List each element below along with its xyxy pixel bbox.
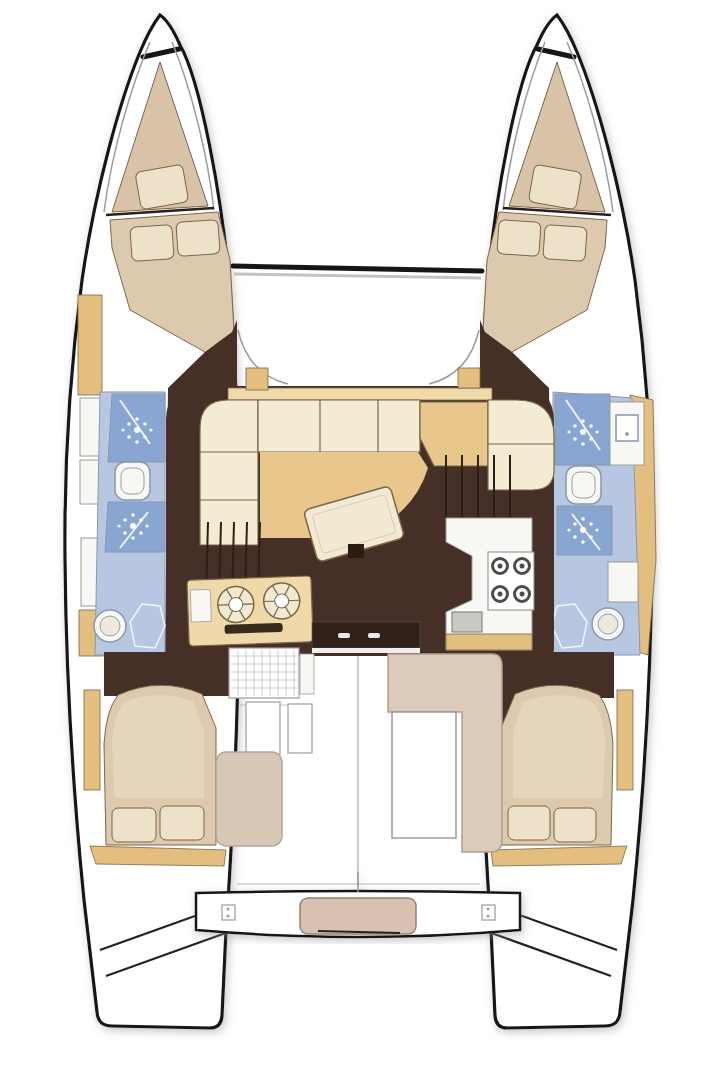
cockpit-seat-port bbox=[216, 752, 282, 846]
galley-sink bbox=[452, 612, 482, 632]
galley-port-unit bbox=[187, 576, 313, 646]
forward-bed-pillow-starboard-1 bbox=[543, 225, 587, 262]
catamaran-floor-plan bbox=[0, 0, 719, 1080]
bathroom-port bbox=[94, 392, 165, 655]
forepeak-pillow-port bbox=[135, 164, 189, 210]
square-sink-icon bbox=[616, 415, 638, 441]
cockpit bbox=[216, 648, 502, 886]
square-sink-drain bbox=[625, 432, 629, 436]
forward-bed-pillow-port-1 bbox=[130, 225, 174, 262]
aft-bed-pillow-starboard-1 bbox=[508, 806, 550, 840]
burner-icon-2 bbox=[263, 582, 300, 619]
aft-deck-trim-starboard bbox=[491, 846, 627, 866]
sofa-right-block bbox=[488, 400, 554, 490]
aft-deck-trim-port bbox=[90, 846, 226, 866]
burner-icon-1 bbox=[217, 586, 254, 623]
aft-bed-pillow-port-1 bbox=[112, 808, 156, 842]
aft-bed-starboard-highlight bbox=[513, 695, 605, 798]
round-sink-bowl-starboard bbox=[598, 614, 618, 634]
vanity-starboard-aft bbox=[608, 562, 638, 602]
cockpit-bench-port-2 bbox=[288, 704, 312, 753]
cockpit-bench-port-1 bbox=[246, 702, 280, 754]
wood-trim-port-fwd bbox=[78, 295, 102, 395]
door-handle-icon bbox=[368, 633, 380, 638]
wood-trim-port-aft bbox=[84, 690, 100, 790]
forward-bed-pillow-port-2 bbox=[176, 220, 220, 257]
cockpit-table bbox=[392, 712, 456, 838]
galley-starboard-trim bbox=[446, 634, 532, 650]
round-sink-bowl-port bbox=[100, 616, 120, 636]
forepeak-pillow-starboard bbox=[528, 164, 582, 210]
aft-bed-pillow-port-2 bbox=[160, 806, 204, 840]
cockpit-grate-table bbox=[229, 648, 299, 698]
cleat-icon-port bbox=[222, 905, 235, 920]
forward-bed-pillow-starboard-2 bbox=[497, 220, 541, 257]
door-handle-icon bbox=[338, 633, 350, 638]
sofa-front-bench bbox=[258, 400, 420, 452]
aft-bench-cushion bbox=[300, 898, 416, 934]
door-threshold bbox=[312, 648, 420, 653]
window-mullion-starboard bbox=[458, 368, 480, 388]
aft-bed-pillow-starboard-2 bbox=[554, 808, 596, 842]
bathroom-starboard bbox=[552, 392, 644, 655]
door-track bbox=[300, 654, 314, 694]
cockpit-sliding-door bbox=[312, 622, 420, 653]
cleat-icon-starboard bbox=[482, 905, 495, 920]
aft-platform bbox=[196, 872, 520, 937]
window-mullion-port bbox=[246, 368, 268, 390]
galley-port-panel bbox=[190, 589, 211, 622]
table-pedestal bbox=[348, 544, 364, 558]
wood-trim-starboard-aft bbox=[617, 690, 633, 790]
aft-bed-port-highlight bbox=[112, 695, 204, 798]
forward-crossbeam-line bbox=[233, 266, 482, 271]
